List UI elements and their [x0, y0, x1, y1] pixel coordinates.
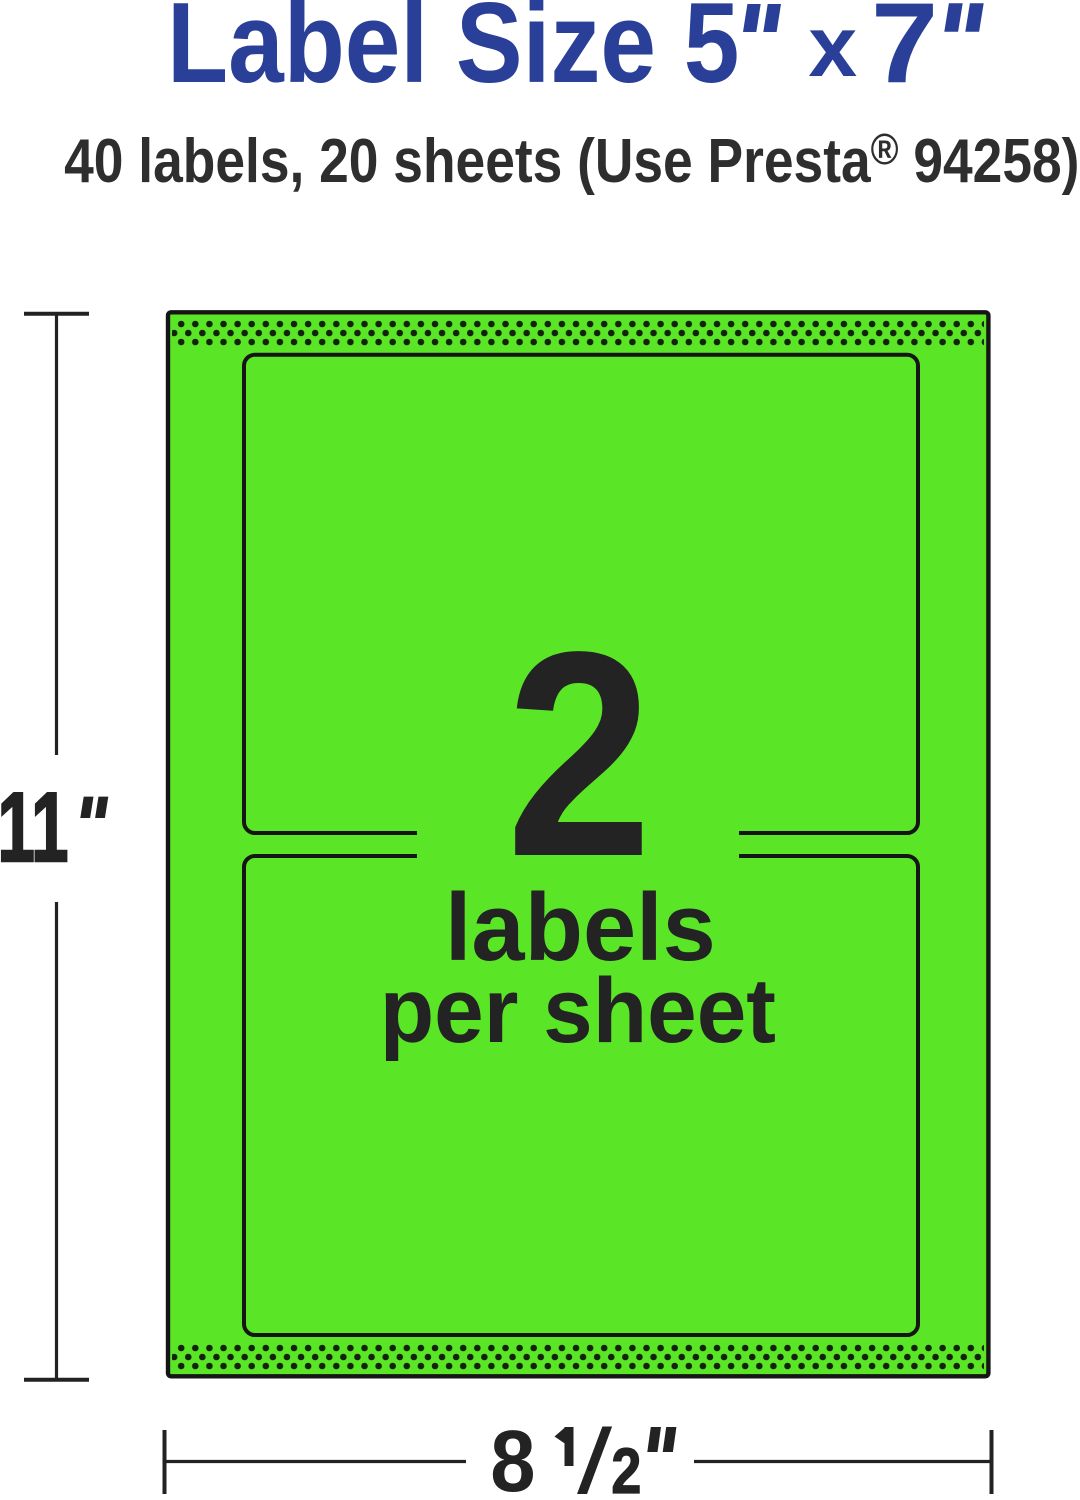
svg-text:x: x: [808, 0, 857, 95]
svg-text:2: 2: [611, 1435, 641, 1500]
svg-text:8: 8: [490, 1413, 535, 1500]
svg-text:Label Size 5: Label Size 5: [167, 0, 739, 106]
svg-text:per sheet: per sheet: [380, 960, 776, 1063]
svg-text:11: 11: [0, 772, 68, 882]
svg-text:40 labels, 20 sheets (Use Pres: 40 labels, 20 sheets (Use Presta® 94258): [64, 124, 1079, 196]
svg-text:2: 2: [506, 591, 652, 917]
svg-text:/: /: [577, 1411, 612, 1500]
svg-text:7: 7: [871, 0, 938, 106]
